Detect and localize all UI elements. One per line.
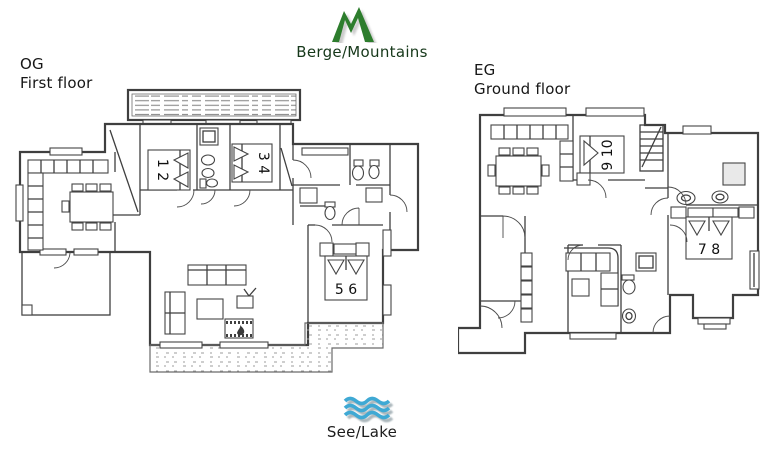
floor-plan-sheet: Berge/Mountains See/Lake OG First floor … [0, 0, 780, 459]
bed-9-10-label: 9 10 [600, 139, 616, 170]
og-floor-plan: 1 2 3 4 [10, 80, 425, 380]
eg-title: EG Ground floor [474, 61, 570, 99]
waves-icon [342, 396, 402, 424]
eg-code: EG [474, 61, 570, 80]
bed-5-6-label: 5 6 [335, 282, 357, 298]
og-fireplace [225, 319, 253, 338]
bed-3-4-label: 3 4 [255, 152, 271, 174]
og-bedroom-3-4: 3 4 [232, 144, 272, 182]
mountains-icon [326, 5, 384, 43]
bed-7-8-label: 7 8 [698, 242, 720, 258]
eg-floor-name: Ground floor [474, 80, 570, 99]
og-coffee-table [197, 299, 223, 319]
mountains-label: Berge/Mountains [262, 43, 462, 61]
eg-floor-plan: 9 10 7 8 [458, 103, 778, 368]
eg-hall-closet [521, 253, 532, 322]
og-lower-balcony [22, 249, 110, 315]
eg-coffee-table [572, 279, 589, 296]
og-code: OG [20, 55, 93, 74]
lake-label: See/Lake [262, 423, 462, 441]
bed-1-2-label: 1 2 [154, 159, 170, 181]
og-bedroom-1-2: 1 2 [148, 150, 190, 190]
og-tv [237, 296, 253, 308]
og-top-balcony [128, 90, 300, 126]
